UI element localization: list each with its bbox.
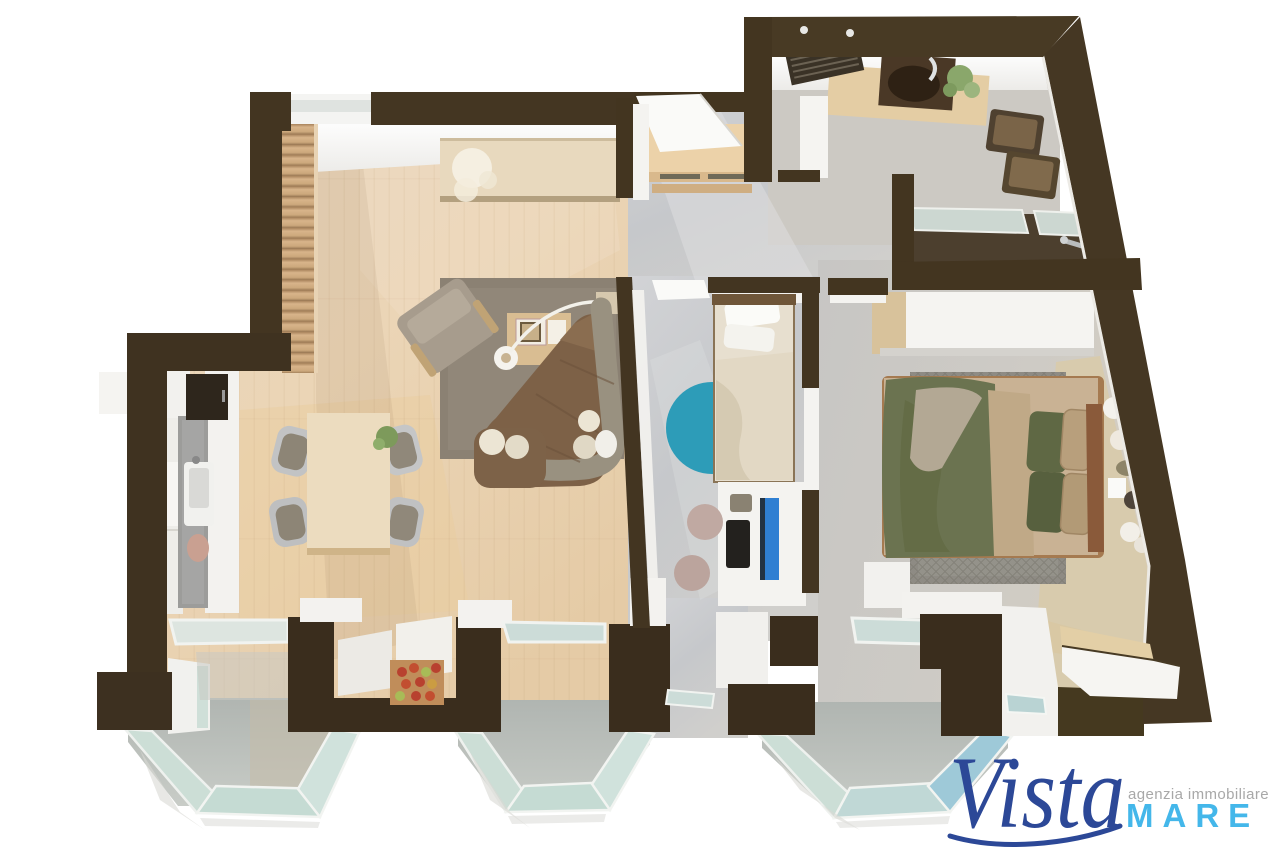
svg-text:MARE: MARE	[1126, 797, 1259, 834]
